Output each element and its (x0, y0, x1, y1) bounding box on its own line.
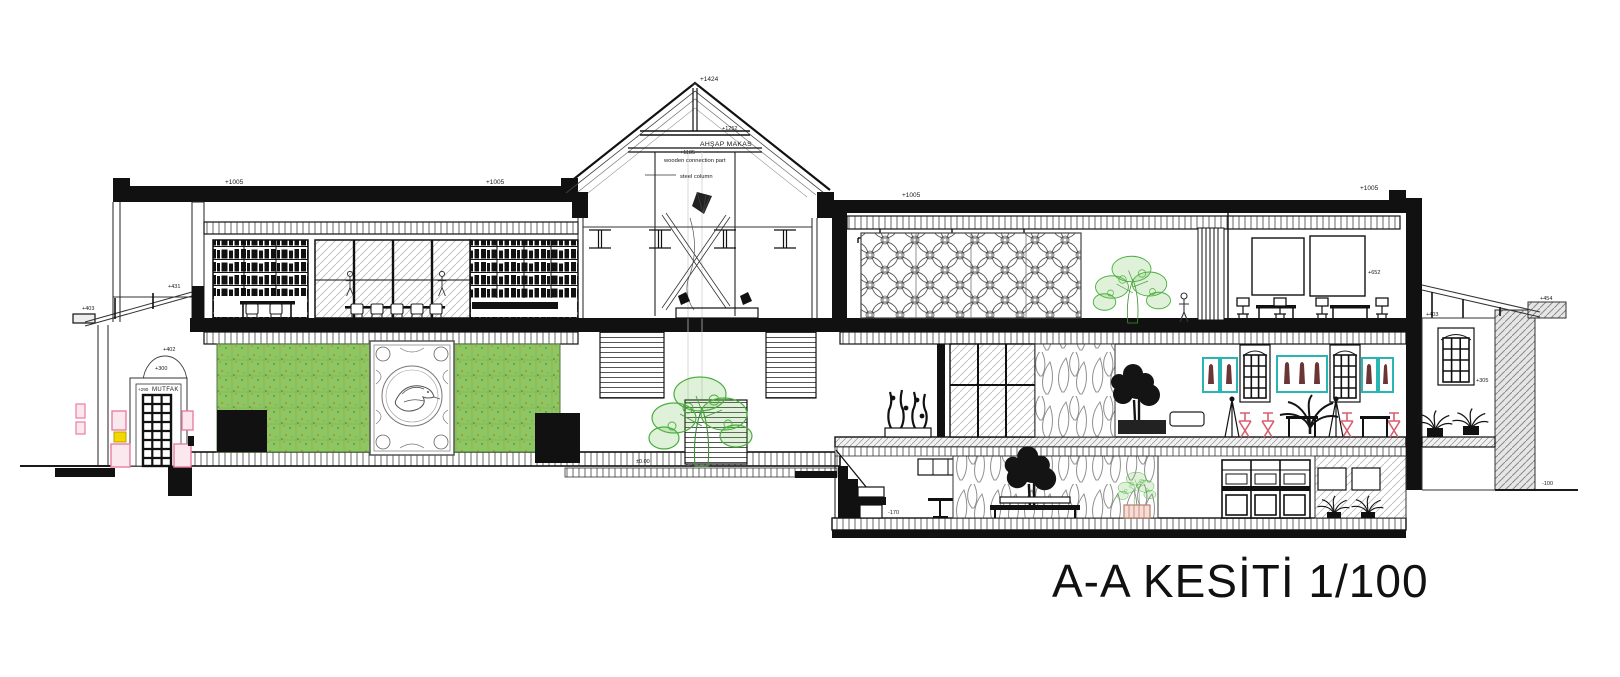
elevation-roof-right-b: +1005 (1360, 185, 1379, 192)
elevation-end-ceiling: +403 (1426, 312, 1438, 318)
elevation-window-sill: +305 (1476, 378, 1488, 384)
slat-panel (1198, 228, 1224, 320)
elevation-ground-right: -100 (1542, 481, 1553, 487)
elevation-roof-left-a: +1005 (225, 179, 244, 186)
wall-board-2 (1310, 236, 1365, 296)
elevation-tie-upper: +1252 (722, 126, 737, 132)
kitchen-door-grid (143, 395, 171, 466)
elevation-basement-foundation: -308 (927, 533, 938, 539)
glass-panels (950, 344, 1035, 437)
louver-panel-right (766, 332, 816, 398)
cyan-art-panels (1203, 356, 1393, 392)
elevation-canopy-eave: +652 (1368, 270, 1380, 276)
sofa (1170, 412, 1204, 426)
drawing-title: A-A KESİTİ 1/100 (1052, 555, 1429, 607)
elevation-ground: ±0.00 (636, 459, 650, 465)
elevation-door-level: +290 (138, 387, 149, 392)
note-steel-column: steel column (680, 174, 713, 180)
elevation-annex-cap: +403 (82, 306, 94, 312)
shelving-unit (1222, 460, 1310, 518)
elevation-roof-right-a: +1005 (902, 192, 921, 199)
tower-sculpture (662, 192, 758, 318)
louver-panel-left (600, 332, 664, 398)
wall-board-1 (1252, 238, 1304, 295)
end-window (1438, 328, 1474, 385)
bar-table (928, 498, 954, 519)
elevation-apex: +1424 (700, 76, 719, 83)
section-drawing-canvas: +1424 +1252 AHŞAP MAKAS +1185 wooden con… (0, 0, 1620, 677)
elevation-canopy-cap: +454 (1540, 296, 1552, 302)
elevation-basement-floor: -170 (888, 510, 899, 516)
section-drawing: +1424 +1252 AHŞAP MAKAS +1185 wooden con… (0, 0, 1620, 677)
right-wing-basement (856, 446, 1406, 518)
upper-floor-person (1179, 293, 1189, 322)
meeting-room (1237, 236, 1388, 318)
left-annex-mutfak (73, 292, 194, 467)
left-wing-upper-library (113, 178, 578, 322)
truss-label: AHŞAP MAKAS (700, 141, 752, 148)
green-wall-hall (217, 341, 580, 463)
coffee-station (856, 487, 886, 518)
lattice-screen (861, 233, 1081, 318)
atrium (600, 332, 816, 466)
tree-planter (1118, 420, 1166, 434)
yellow-appliance (114, 432, 126, 442)
kitchen-door-label: MUTFAK (152, 387, 179, 393)
elevation-wall-lower: +402 (163, 347, 175, 353)
note-wooden-connection: wooden connection part (663, 158, 726, 164)
center-tower (560, 83, 834, 466)
elevation-roof-left-b: +1005 (486, 179, 505, 186)
bamboo-plants (885, 390, 931, 437)
ceiling-beams (583, 227, 812, 248)
mid-floor-black-tree (1111, 364, 1160, 420)
bookshelf-left (213, 240, 308, 318)
bookshelf-right (470, 240, 578, 318)
elevation-arch-top: +300 (155, 366, 167, 372)
ornament-panel (370, 341, 454, 455)
elevation-wall-upper: +431 (168, 284, 180, 290)
leaf-pattern-wall-mid (1035, 344, 1115, 437)
upper-floor-tree (1093, 256, 1170, 323)
elevation-tie-lower: +1185 (680, 150, 695, 156)
